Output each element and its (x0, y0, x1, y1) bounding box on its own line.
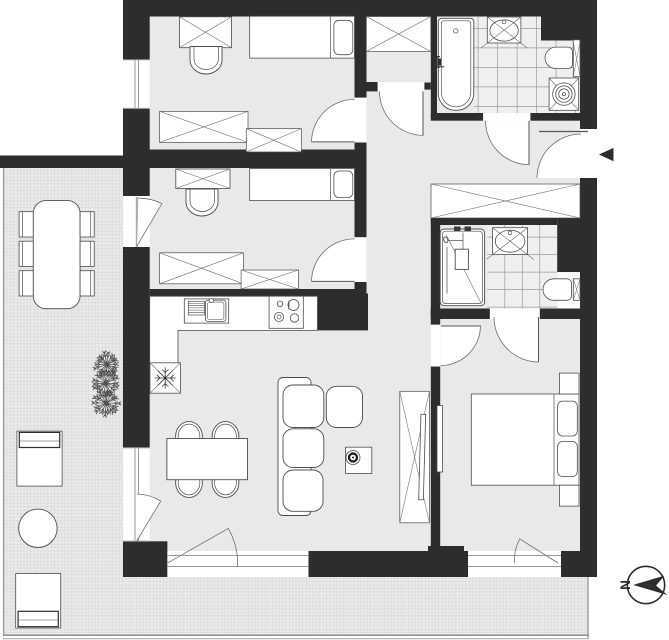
svg-text:N: N (618, 580, 633, 590)
